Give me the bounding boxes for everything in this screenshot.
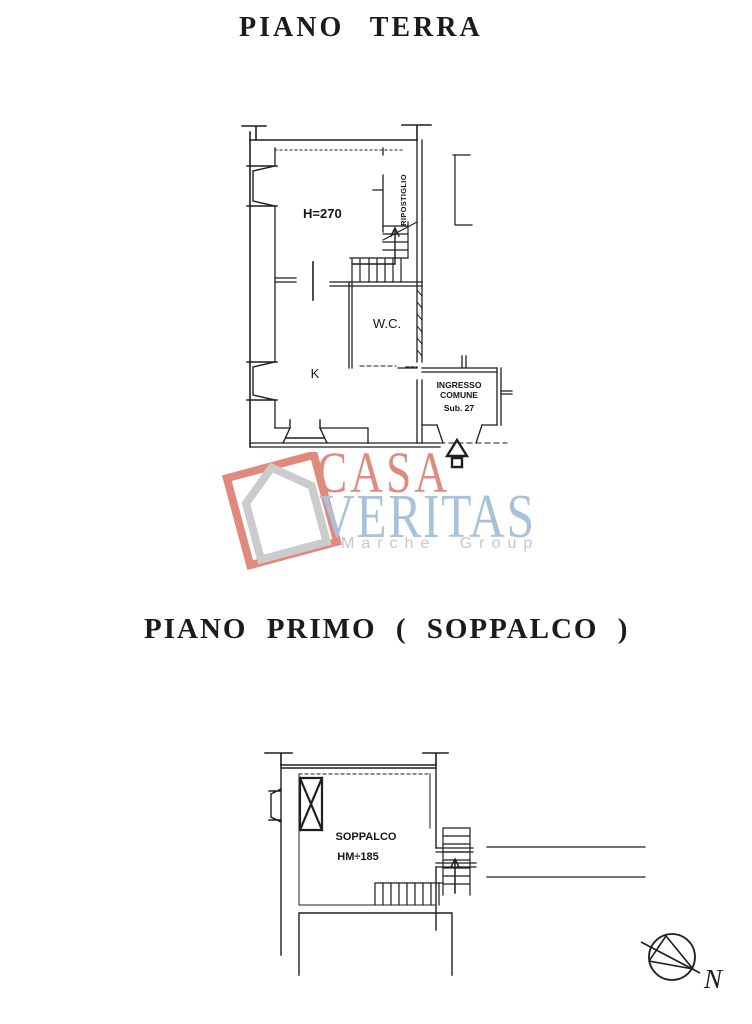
- pillar-top-left: [242, 126, 266, 140]
- mezz-room-label: SOPPALCO: [336, 831, 397, 843]
- pillar-top-right-mezz: [423, 753, 448, 765]
- window-left-lower: [247, 362, 277, 400]
- ground-floor-title: PIANO TERRA: [239, 12, 483, 44]
- entrance-label-3: Sub. 27: [444, 403, 475, 413]
- mezzanine-title: PIANO PRIMO ( SOPPALCO ): [144, 613, 629, 646]
- lower-void-walls: [299, 913, 452, 975]
- stairs-up-arrow: [352, 230, 395, 264]
- window-left-mezz: [269, 789, 281, 822]
- storage-label: RIPOSTIGLIO: [399, 174, 408, 226]
- mezzanine-plan: SOPPALCO HM÷185: [255, 745, 655, 990]
- north-compass: N: [630, 925, 750, 1000]
- entrance-label-2: COMUNE: [440, 390, 478, 400]
- right-wall: [406, 140, 422, 443]
- wc-label: W.C.: [373, 316, 401, 331]
- ground-room-height-label: H=270: [303, 206, 342, 221]
- window-left-upper: [247, 166, 277, 206]
- void-cross-symbol: [300, 778, 322, 830]
- compass-circle: [649, 934, 695, 980]
- storage-closet-wall: [373, 148, 383, 232]
- pillar-top-right: [402, 125, 431, 140]
- pillar-top-left-mezz: [265, 753, 292, 765]
- north-label: N: [703, 964, 724, 994]
- entrance-label-1: INGRESSO: [437, 380, 482, 390]
- neighbor-wall-right: [453, 155, 472, 225]
- mezz-height-label: HM÷185: [337, 851, 379, 863]
- ground-floor-plan: H=270 RIPOSTIGLIO W.C. K INGRESSO COMUNE…: [235, 112, 525, 472]
- neighbor-walls-right-mezz: [487, 847, 645, 877]
- watermark-tagline: Marche Group: [341, 536, 539, 552]
- kitchen-label: K: [311, 366, 320, 381]
- floor-plan-document: PIANO TERRA: [0, 0, 752, 1024]
